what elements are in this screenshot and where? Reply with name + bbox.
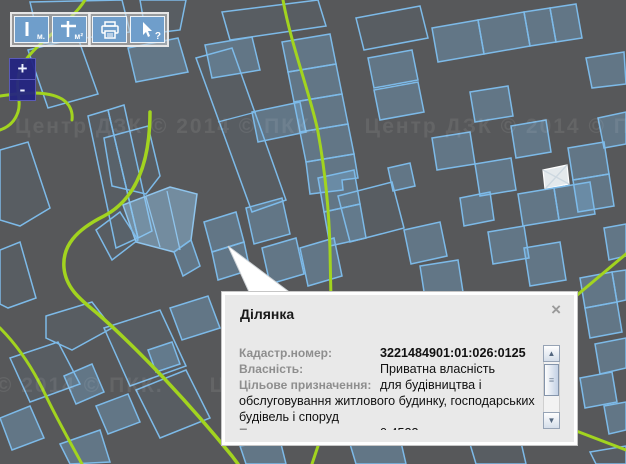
close-icon[interactable]: × xyxy=(551,300,561,320)
map-parcel[interactable] xyxy=(262,238,304,284)
map-parcel[interactable] xyxy=(585,302,622,338)
toolbar-measure-group: м. м² xyxy=(10,12,91,47)
measure-area-button[interactable]: м² xyxy=(52,16,87,43)
map-parcel[interactable] xyxy=(488,226,529,264)
field-label: Площа: xyxy=(239,425,380,430)
map-parcel[interactable] xyxy=(368,50,418,88)
zoom-out-button[interactable]: - xyxy=(9,79,36,101)
identify-question-label: ? xyxy=(155,33,161,41)
map-parcel[interactable] xyxy=(604,402,626,434)
map-parcel[interactable] xyxy=(0,142,50,226)
parcel-field-row: Власність:Приватна власність xyxy=(239,361,549,377)
map-parcel[interactable] xyxy=(595,338,626,374)
map-parcel[interactable] xyxy=(28,38,98,108)
map-parcel[interactable] xyxy=(604,224,626,260)
measure-area-label: м² xyxy=(74,33,83,41)
map-parcel[interactable] xyxy=(300,238,342,286)
scroll-up-button[interactable]: ▲ xyxy=(543,345,560,362)
map-road xyxy=(312,446,318,464)
map-parcel[interactable] xyxy=(518,188,559,226)
printer-icon xyxy=(99,20,121,40)
field-value: 0.4523 xyxy=(380,426,419,430)
map-parcel[interactable] xyxy=(222,0,326,40)
scroll-down-button[interactable]: ▼ xyxy=(543,412,560,429)
map-parcel[interactable] xyxy=(170,296,220,340)
map-parcel[interactable] xyxy=(475,158,516,196)
map-parcel[interactable] xyxy=(460,192,494,226)
map-parcel[interactable] xyxy=(0,242,36,308)
parcel-field-row: Цільове призначення:для будівництва і об… xyxy=(239,377,549,425)
map-parcel[interactable] xyxy=(96,394,140,434)
popup-title: Ділянка xyxy=(240,306,294,322)
scrollbar-thumb[interactable]: ≡ xyxy=(544,364,559,396)
map-parcel[interactable] xyxy=(404,222,447,264)
field-label: Власність: xyxy=(239,361,380,377)
map-watermark: Центр ДЗК © 2014 © ПКК. Центр ДЗК © 2014… xyxy=(15,115,626,138)
scrollbar-track[interactable]: ≡ xyxy=(543,362,560,412)
map-parcel[interactable] xyxy=(432,20,484,62)
field-label: Цільове призначення: xyxy=(239,377,380,393)
field-value: 3221484901:01:026:0125 xyxy=(380,346,526,360)
map-parcel[interactable] xyxy=(478,12,530,54)
map-parcel[interactable] xyxy=(0,406,44,450)
zoom-in-button[interactable]: + xyxy=(9,58,36,80)
map-parcel[interactable] xyxy=(580,372,617,408)
identify-button[interactable]: ? xyxy=(130,16,165,43)
map-parcel[interactable] xyxy=(524,242,566,286)
field-label: Кадастр.номер: xyxy=(239,345,380,361)
map-parcel[interactable] xyxy=(554,182,595,220)
parcel-field-row: Кадастр.номер:3221484901:01:026:0125 xyxy=(239,345,549,361)
map-parcel[interactable] xyxy=(550,4,582,42)
map-parcel[interactable] xyxy=(356,6,428,50)
measure-length-button[interactable]: м. xyxy=(14,16,49,43)
measure-length-label: м. xyxy=(37,33,45,41)
parcel-fields: Кадастр.номер:3221484901:01:026:0125Влас… xyxy=(239,345,549,430)
field-value: Приватна власність xyxy=(380,362,495,376)
toolbar-actions-group: ? xyxy=(88,12,169,47)
parcel-info-popup: Ділянка × Кадастр.номер:3221484901:01:02… xyxy=(222,292,577,445)
popup-scrollbar: ▲ ≡ ▼ xyxy=(543,345,560,429)
print-button[interactable] xyxy=(92,16,127,43)
map-parcel[interactable] xyxy=(586,52,626,88)
zoom-control: + - xyxy=(9,58,36,101)
parcel-field-row: Площа:0.4523 xyxy=(239,425,549,430)
map-application-window: Центр ДЗК © 2014 © ПКК. Центр ДЗК © 2014… xyxy=(0,0,626,464)
